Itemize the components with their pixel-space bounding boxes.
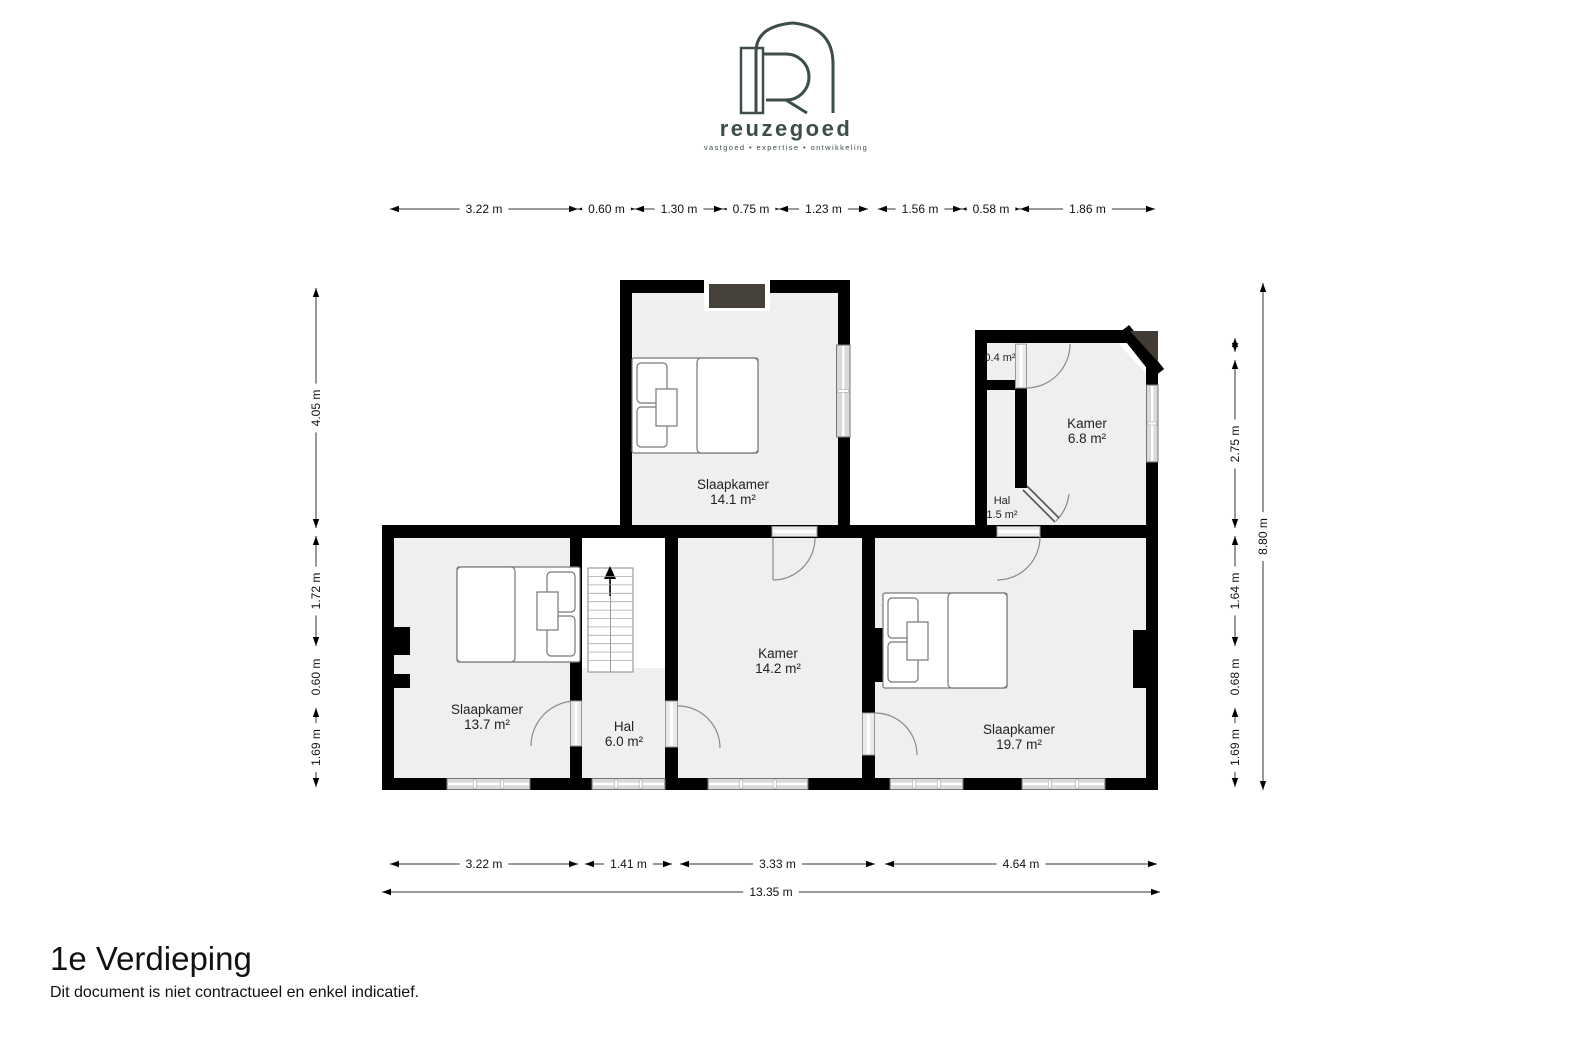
room-name: Hal <box>994 495 1011 507</box>
dimension-label: 1.23 m <box>805 202 842 216</box>
dimension-label: 3.22 m <box>466 202 503 216</box>
room-area: 14.2 m² <box>755 661 801 676</box>
dimension: 1.30 m <box>635 202 723 216</box>
wall <box>975 330 1132 343</box>
dimension-label: 4.05 m <box>309 390 323 427</box>
dimension-label: 1.41 m <box>610 857 647 871</box>
page-title: 1e Verdieping <box>50 940 419 978</box>
window <box>1147 385 1159 462</box>
dimension: 1.41 m <box>585 857 672 871</box>
room-area: 0.4 m² <box>984 352 1016 364</box>
window <box>708 779 808 790</box>
dimension-label: 1.72 m <box>309 573 323 610</box>
logo-arch-r-icon <box>741 23 833 113</box>
floorplan-canvas: reuzegoed vastgoed • expertise • ontwikk… <box>0 0 1578 1050</box>
dimension: 1.69 m <box>309 708 323 787</box>
room-name: Slaapkamer <box>983 722 1056 737</box>
wall <box>620 293 632 538</box>
wall <box>382 525 1158 538</box>
dimension: 3.33 m <box>680 857 875 871</box>
dimension: 2.75 m <box>1228 360 1242 528</box>
dimension: 8.80 m <box>1256 283 1270 790</box>
wall-pier <box>1133 630 1158 688</box>
dimension-label: 3.22 m <box>466 857 503 871</box>
dimension: 0.58 m <box>962 202 1020 216</box>
dimension: 1.64 m <box>1228 536 1242 646</box>
bed-right <box>883 593 1007 688</box>
bed-bench <box>537 592 558 630</box>
room-area: 6.8 m² <box>1068 431 1107 446</box>
dimension: 0.75 m <box>723 202 779 216</box>
wall-pier <box>382 627 410 655</box>
dimension-label: 1.69 m <box>309 729 323 766</box>
door-frame <box>772 527 817 537</box>
bed-left <box>457 567 580 662</box>
dimension: 4.05 m <box>309 288 323 528</box>
room-name: Kamer <box>758 646 798 661</box>
door-frame <box>863 713 875 755</box>
bed-bench <box>907 622 928 660</box>
room-name: Hal <box>614 719 634 734</box>
dimension: 0.68 m <box>1228 653 1242 702</box>
dimension: 1.69 m <box>1228 708 1242 787</box>
door-frame <box>997 527 1040 537</box>
wall-pier <box>382 674 410 688</box>
dimension-label: 1.86 m <box>1069 202 1106 216</box>
brand-name: reuzegoed <box>720 116 853 141</box>
room-name: Kamer <box>1067 416 1107 431</box>
dimension: 4.64 m <box>885 857 1157 871</box>
duvet <box>697 358 758 453</box>
room-area: 13.7 m² <box>464 717 510 732</box>
window <box>592 779 665 790</box>
wall <box>1015 388 1027 488</box>
dimension-label: 1.69 m <box>1228 729 1242 766</box>
disclaimer-text: Dit document is niet contractueel en enk… <box>50 984 419 1002</box>
dimension: 13.35 m <box>382 885 1160 899</box>
title-block: 1e Verdieping Dit document is niet contr… <box>50 940 419 1002</box>
dimension-label: 1.56 m <box>902 202 939 216</box>
window <box>1022 779 1105 790</box>
dimension-label: 3.33 m <box>759 857 796 871</box>
bed-top <box>632 358 758 453</box>
door-frame <box>571 701 582 746</box>
dimension-label: 1.64 m <box>1228 573 1242 610</box>
dimension <box>1232 338 1238 352</box>
dimension-label: 0.75 m <box>733 202 770 216</box>
dimension: 0.60 m <box>309 653 323 702</box>
dimension-label: 13.35 m <box>749 885 792 899</box>
dimension: 3.22 m <box>390 202 578 216</box>
dimension: 1.86 m <box>1020 202 1155 216</box>
dimension-label: 0.58 m <box>973 202 1010 216</box>
room-area: 14.1 m² <box>710 492 756 507</box>
staircase <box>588 566 633 672</box>
duvet <box>457 567 515 662</box>
dimension: 1.72 m <box>309 536 323 646</box>
room-area: 19.7 m² <box>996 737 1042 752</box>
dimension-label: 2.75 m <box>1228 426 1242 463</box>
window <box>890 779 963 790</box>
dimension: 1.56 m <box>878 202 962 216</box>
window <box>447 779 530 790</box>
window <box>837 345 851 437</box>
door-frame <box>666 701 678 747</box>
dimension-label: 4.64 m <box>1003 857 1040 871</box>
room-area: 6.0 m² <box>605 734 644 749</box>
wall <box>382 525 394 790</box>
dimension: 0.60 m <box>578 202 635 216</box>
room-name: Slaapkamer <box>451 702 524 717</box>
dimension-label: 0.60 m <box>588 202 625 216</box>
brand-tagline: vastgoed • expertise • ontwikkeling <box>704 143 868 152</box>
chimney <box>704 280 770 311</box>
dimension-label: 8.80 m <box>1256 518 1270 555</box>
bed-bench <box>656 389 677 426</box>
duvet <box>948 593 1007 688</box>
room-name: Slaapkamer <box>697 477 770 492</box>
brand-logo: reuzegoed vastgoed • expertise • ontwikk… <box>704 23 868 152</box>
dimension-label: 0.60 m <box>309 659 323 696</box>
dimension-label: 1.30 m <box>661 202 698 216</box>
floorplan-page: reuzegoed vastgoed • expertise • ontwikk… <box>0 0 1578 1050</box>
dimension: 1.23 m <box>779 202 868 216</box>
dimension-label: 0.68 m <box>1228 659 1242 696</box>
wall <box>665 525 678 790</box>
room-area: 1.5 m² <box>986 509 1018 521</box>
door-frame <box>1016 344 1027 388</box>
dimension: 3.22 m <box>390 857 578 871</box>
